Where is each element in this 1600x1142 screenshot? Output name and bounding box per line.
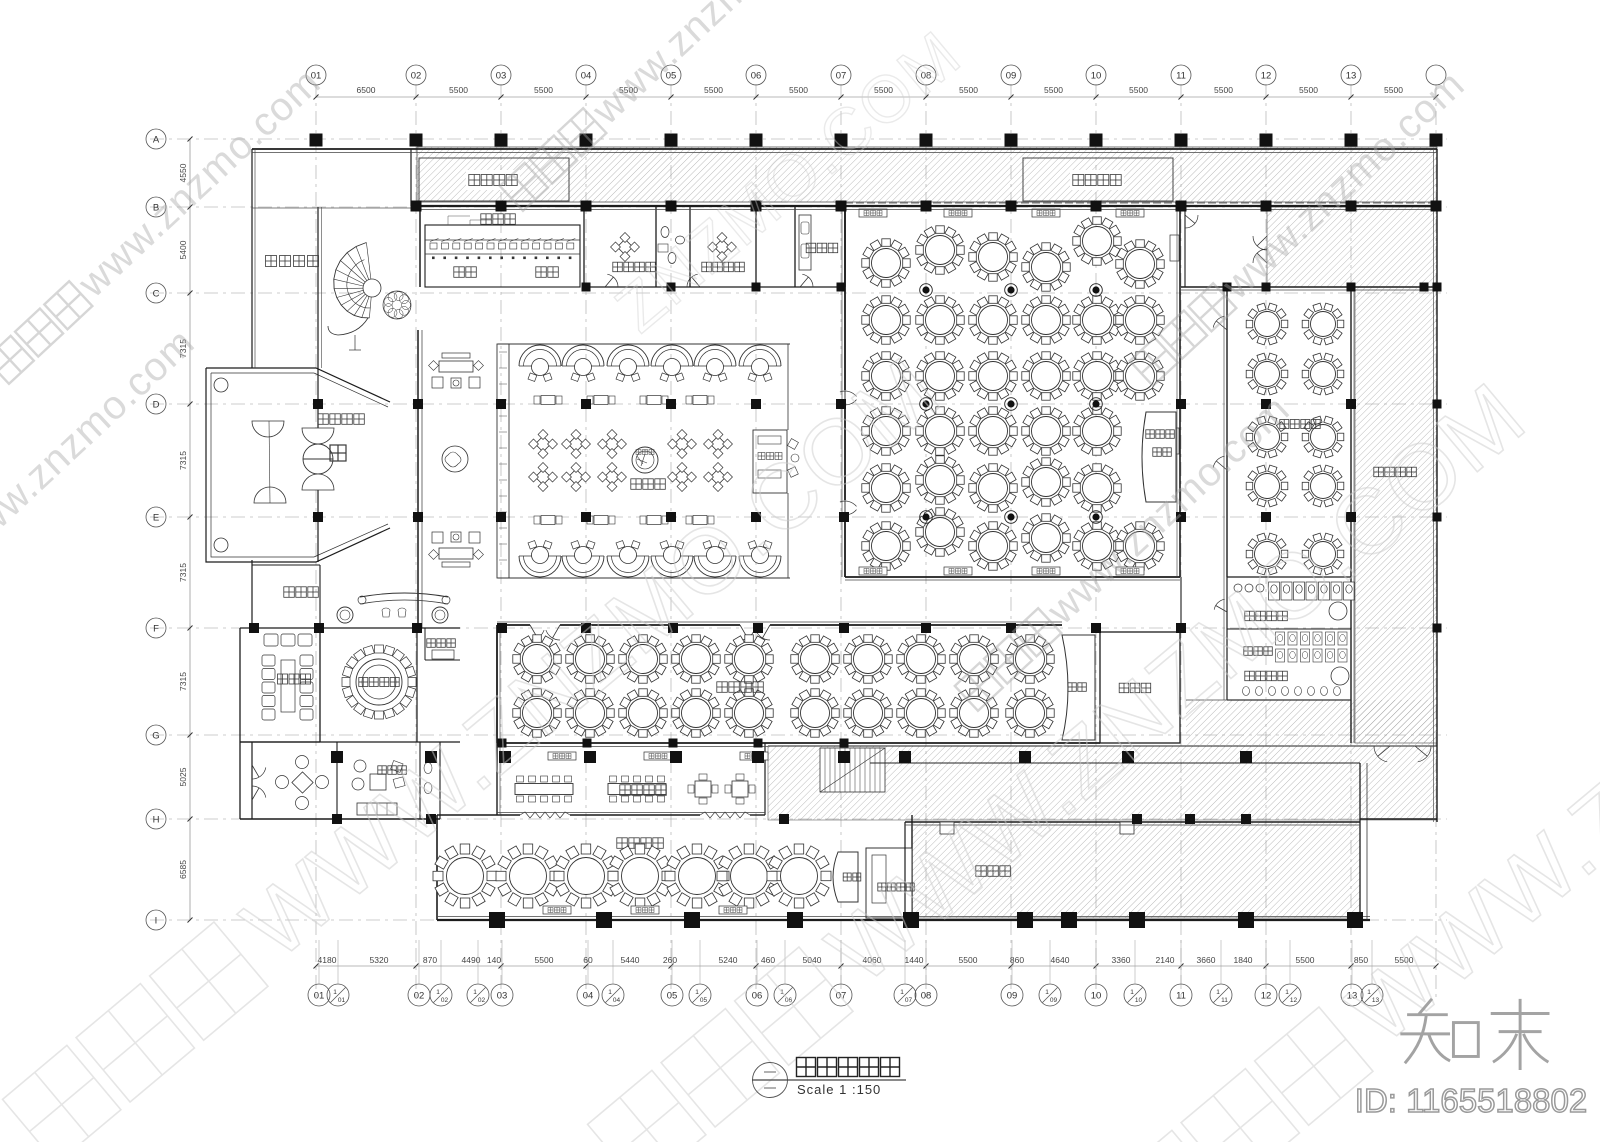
svg-text:11: 11 (1176, 71, 1186, 82)
svg-text:01: 01 (338, 997, 346, 1004)
svg-text:260: 260 (663, 955, 677, 965)
svg-text:06: 06 (751, 71, 762, 82)
svg-text:04: 04 (583, 991, 594, 1002)
svg-text:08: 08 (921, 991, 932, 1002)
svg-text:D: D (153, 400, 160, 411)
svg-text:5500: 5500 (1214, 85, 1233, 95)
svg-text:07: 07 (905, 997, 913, 1004)
svg-text:5500: 5500 (1129, 85, 1148, 95)
svg-text:09: 09 (1006, 71, 1017, 82)
svg-text:12: 12 (1261, 71, 1272, 82)
svg-text:5500: 5500 (1044, 85, 1063, 95)
svg-text:10: 10 (1091, 71, 1102, 82)
svg-text:1: 1 (1130, 989, 1134, 996)
svg-text:12: 12 (1290, 997, 1298, 1004)
svg-text:13: 13 (1346, 71, 1357, 82)
svg-text:G: G (152, 731, 159, 742)
svg-text:5500: 5500 (1384, 85, 1403, 95)
svg-text:1: 1 (695, 989, 699, 996)
svg-text:A: A (153, 135, 160, 146)
svg-text:5440: 5440 (621, 955, 640, 965)
svg-text:11: 11 (1176, 991, 1186, 1002)
svg-text:C: C (153, 289, 160, 300)
svg-text:1: 1 (436, 989, 440, 996)
svg-text:02: 02 (478, 997, 486, 1004)
svg-text:3360: 3360 (1112, 955, 1131, 965)
svg-text:1: 1 (333, 989, 337, 996)
svg-text:02: 02 (411, 71, 422, 82)
svg-text:1: 1 (1045, 989, 1049, 996)
svg-text:05: 05 (700, 997, 708, 1004)
svg-text:04: 04 (613, 997, 621, 1004)
svg-text:H: H (153, 815, 160, 826)
svg-text:10: 10 (1091, 991, 1102, 1002)
svg-text:E: E (153, 513, 159, 524)
svg-text:5500: 5500 (789, 85, 808, 95)
svg-text:5500: 5500 (534, 85, 553, 95)
svg-text:03: 03 (496, 71, 507, 82)
svg-text:7315: 7315 (178, 672, 188, 691)
svg-text:09: 09 (1007, 991, 1018, 1002)
svg-text:4640: 4640 (1051, 955, 1070, 965)
svg-text:F: F (153, 624, 159, 635)
svg-text:04: 04 (581, 71, 592, 82)
svg-text:5500: 5500 (1299, 85, 1318, 95)
svg-text:2140: 2140 (1156, 955, 1175, 965)
svg-text:6500: 6500 (357, 85, 376, 95)
svg-text:5500: 5500 (704, 85, 723, 95)
svg-text:07: 07 (836, 71, 847, 82)
svg-text:5025: 5025 (178, 767, 188, 786)
svg-text:7315: 7315 (178, 563, 188, 582)
svg-text:I: I (155, 916, 158, 927)
svg-text:12: 12 (1261, 991, 1272, 1002)
svg-text:1840: 1840 (1234, 955, 1253, 965)
svg-text:460: 460 (761, 955, 775, 965)
svg-text:5240: 5240 (719, 955, 738, 965)
svg-text:5500: 5500 (959, 955, 978, 965)
svg-text:140: 140 (487, 955, 501, 965)
svg-text:05: 05 (667, 991, 678, 1002)
svg-text:870: 870 (423, 955, 437, 965)
svg-text:11: 11 (1221, 997, 1228, 1004)
svg-text:02: 02 (441, 997, 449, 1004)
svg-text:Scale 1 :150: Scale 1 :150 (797, 1082, 881, 1097)
svg-text:ID: 1165518802: ID: 1165518802 (1355, 1082, 1587, 1119)
svg-text:03: 03 (497, 991, 508, 1002)
svg-text:5400: 5400 (178, 240, 188, 259)
svg-text:5500: 5500 (1296, 955, 1315, 965)
svg-text:01: 01 (314, 991, 325, 1002)
svg-text:1: 1 (1216, 989, 1220, 996)
svg-text:7315: 7315 (178, 451, 188, 470)
svg-text:4180: 4180 (318, 955, 337, 965)
svg-text:5500: 5500 (535, 955, 554, 965)
svg-text:1: 1 (1285, 989, 1289, 996)
svg-text:5320: 5320 (370, 955, 389, 965)
svg-text:5500: 5500 (449, 85, 468, 95)
svg-text:1: 1 (900, 989, 904, 996)
svg-text:5500: 5500 (959, 85, 978, 95)
svg-text:3660: 3660 (1197, 955, 1216, 965)
svg-text:6585: 6585 (178, 860, 188, 879)
svg-text:09: 09 (1050, 997, 1058, 1004)
svg-text:02: 02 (414, 991, 425, 1002)
svg-text:06: 06 (752, 991, 763, 1002)
svg-text:10: 10 (1135, 997, 1143, 1004)
svg-text:1: 1 (608, 989, 612, 996)
svg-text:1: 1 (473, 989, 477, 996)
